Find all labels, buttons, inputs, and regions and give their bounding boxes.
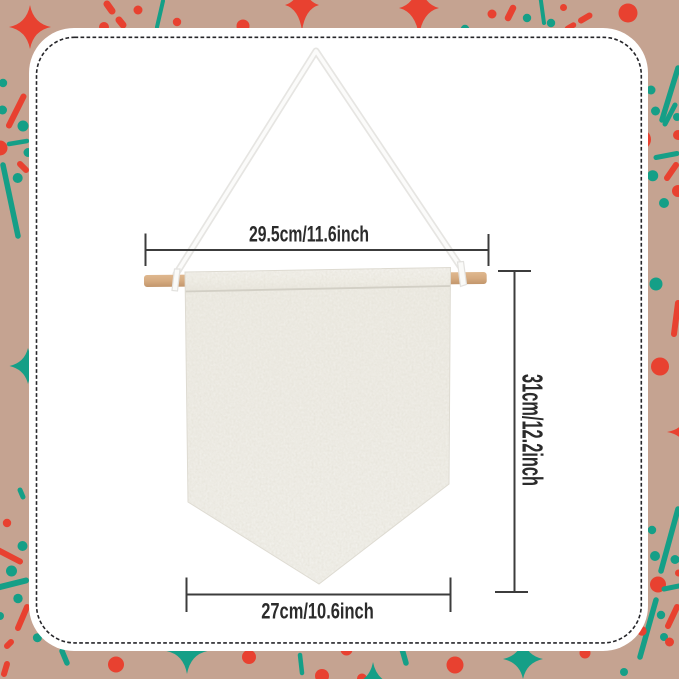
svg-text:29.5cm/11.6inch: 29.5cm/11.6inch	[249, 222, 369, 247]
svg-text:31cm/12.2inch: 31cm/12.2inch	[516, 374, 548, 486]
svg-text:27cm/10.6inch: 27cm/10.6inch	[261, 599, 374, 624]
